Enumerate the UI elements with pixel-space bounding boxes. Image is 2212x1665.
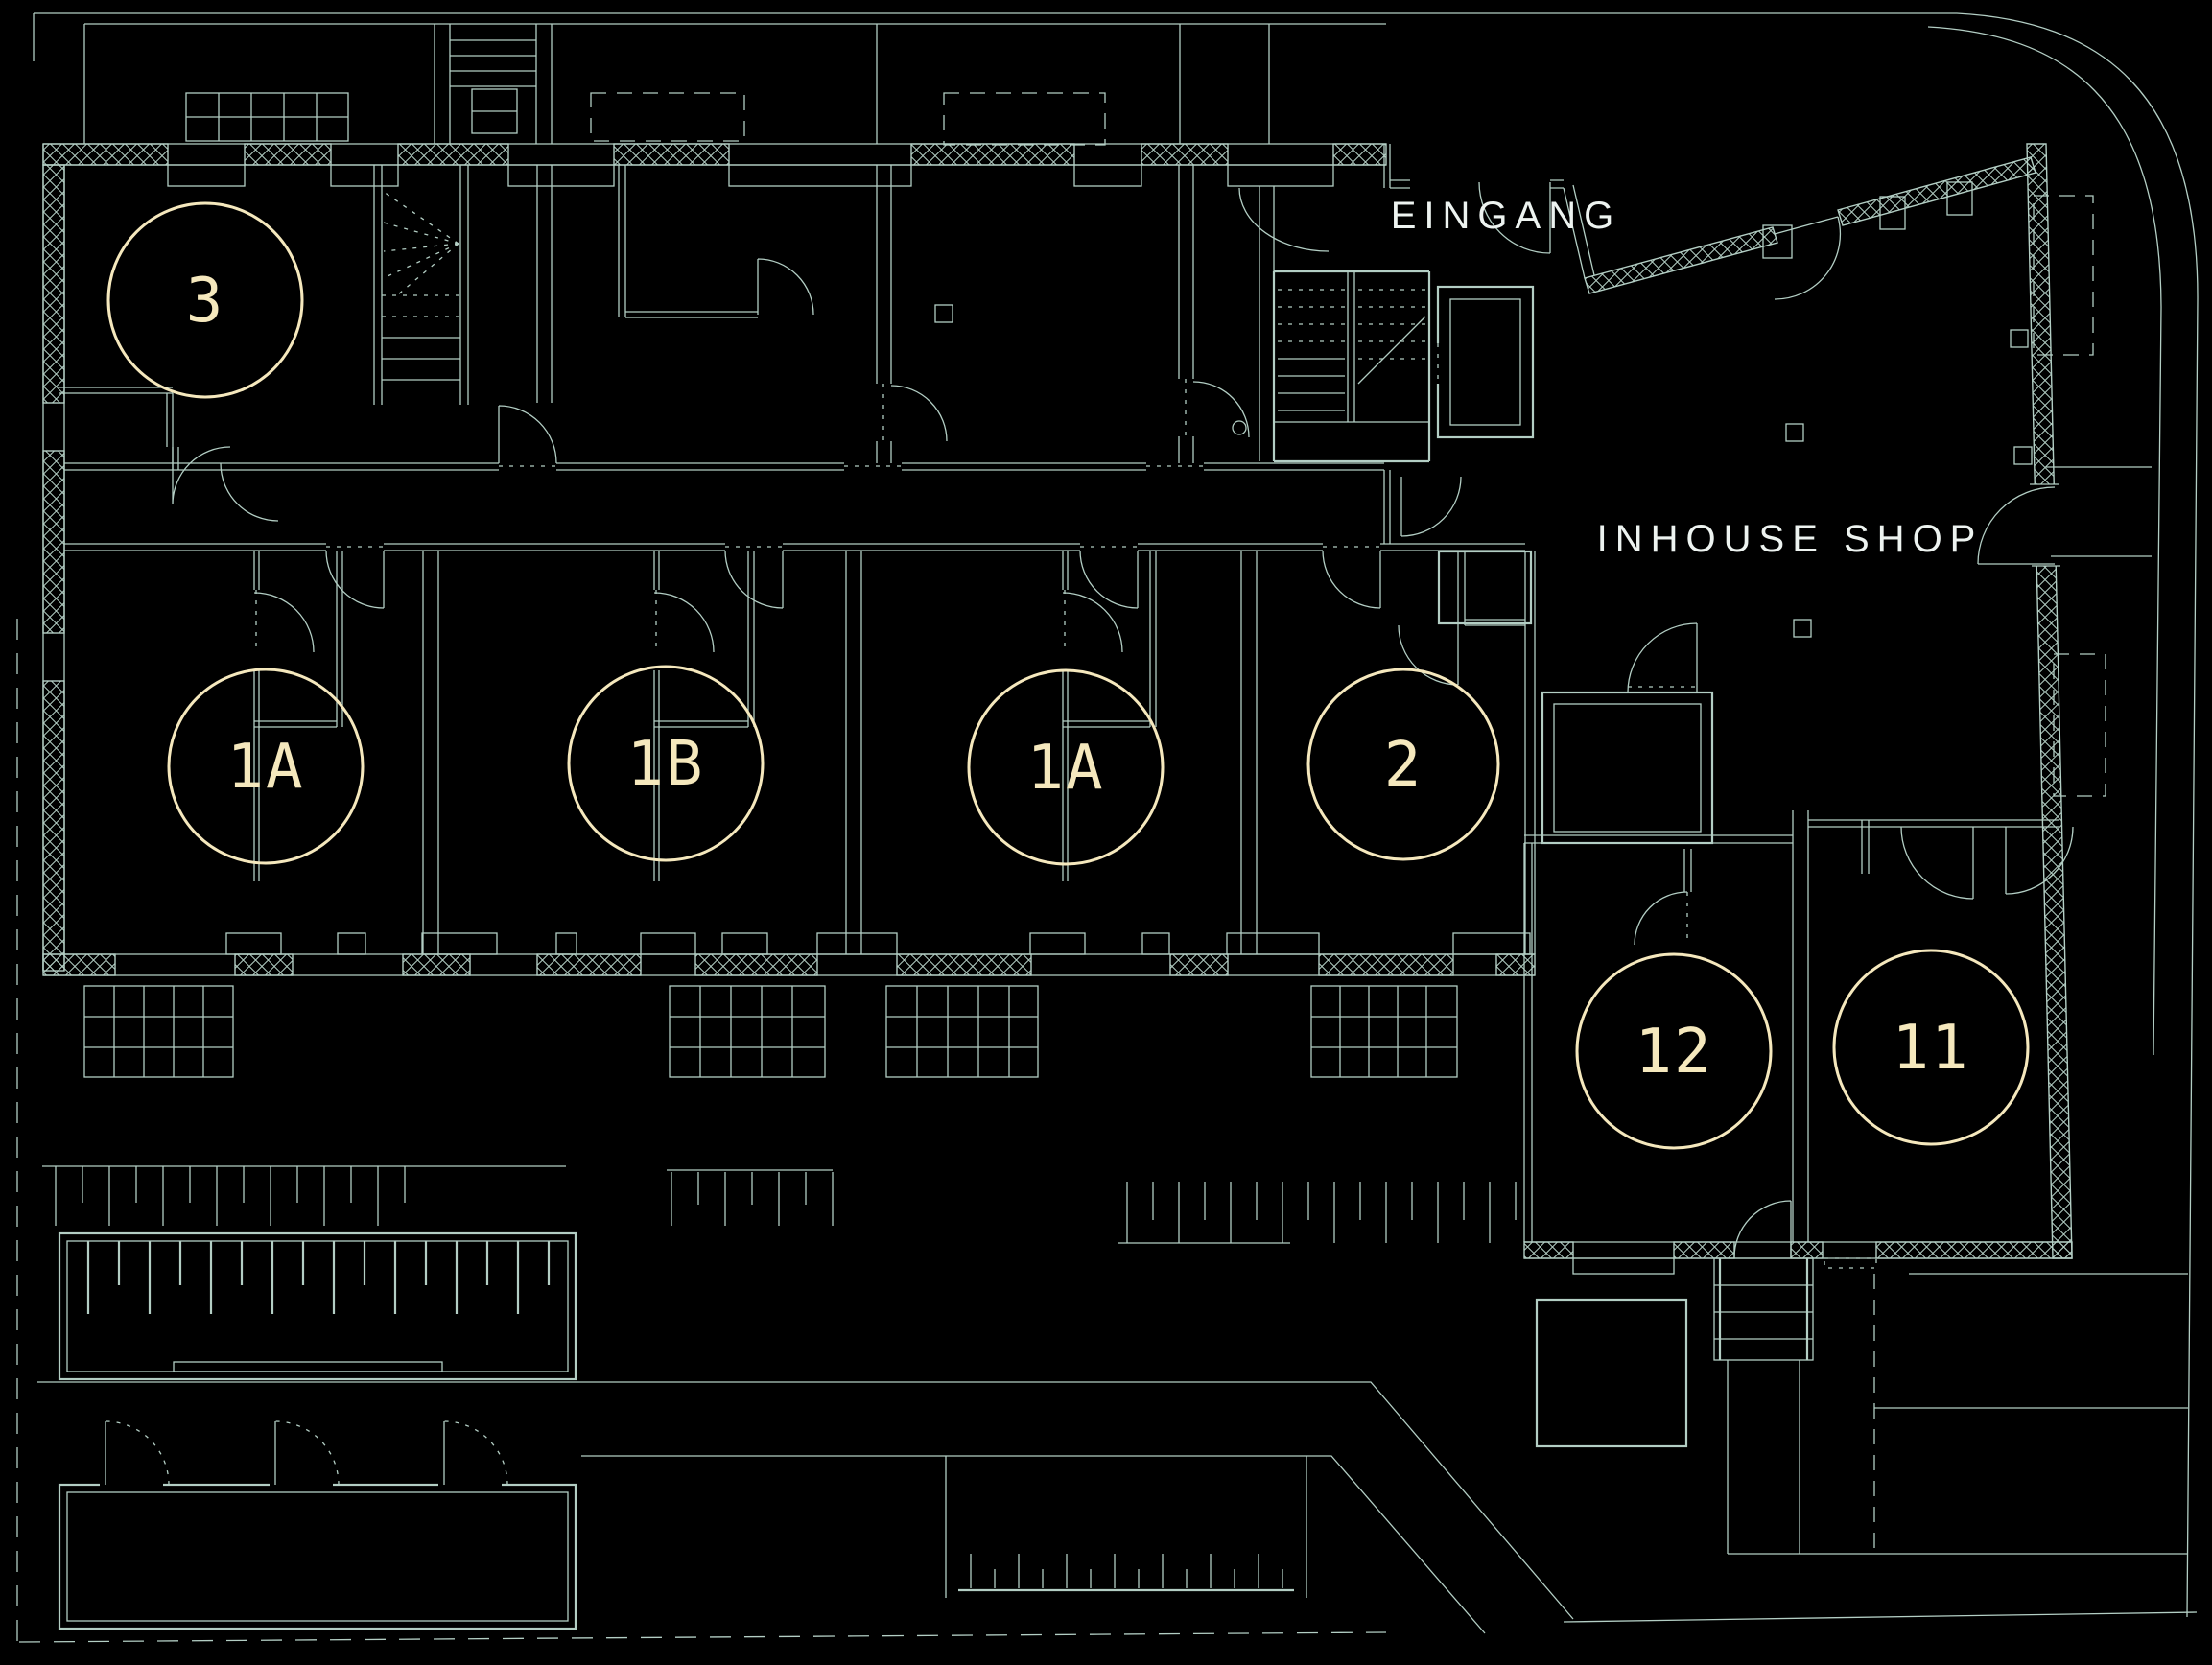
unit-marker-label-1B: 1B (626, 729, 704, 800)
storefront-wall (1838, 157, 2036, 225)
driveway-edge (581, 1456, 1485, 1633)
entrance-label: EINGANG (1391, 195, 1621, 237)
property-line-bottom (19, 1632, 1386, 1642)
balcony-grid (886, 986, 1038, 1077)
column (2014, 447, 2032, 464)
shop-storage-room (1542, 623, 1712, 843)
door-stop (1233, 421, 1246, 434)
plan-labels: EINGANG INHOUSE SHOP (1391, 195, 1984, 560)
floor-plan-page: 31A1B1A21211 EINGANG INHOUSE SHOP (0, 0, 2212, 1665)
balcony-grids (84, 986, 1457, 1077)
balcony-grid (1311, 986, 1457, 1077)
lobby-back-room (1439, 551, 1531, 623)
unit-marker-label-3: 3 (186, 266, 225, 337)
column (935, 305, 953, 322)
lobby-door (1401, 477, 1461, 536)
unit-marker-label-1A: 1A (1026, 733, 1104, 804)
room12-exterior-door (1734, 1201, 1791, 1258)
unit-1a-interior (254, 551, 342, 881)
parking-comb (1127, 1182, 1516, 1243)
column (1786, 424, 1803, 441)
unit-marker-label-11: 11 (1892, 1013, 1969, 1084)
driveway-edge (37, 1382, 1573, 1619)
winder-stair (374, 165, 468, 405)
site-boundary (17, 13, 2198, 1642)
unit-2-interior (1399, 551, 1525, 685)
upper-room-partitions (59, 165, 1329, 521)
dashed-overhang (591, 93, 744, 141)
exterior-stair-top (450, 40, 536, 133)
shop-area (1542, 424, 1811, 843)
rooms-12-11 (1524, 810, 2073, 1258)
window-sills-top (168, 165, 1333, 186)
dashed-overhang (944, 93, 1105, 145)
corridor-walls (64, 421, 1525, 551)
balcony-grid (84, 986, 233, 1077)
unit-1b-interior (654, 551, 754, 881)
yard-and-parking (37, 1166, 2188, 1633)
unit-marker-label-2: 2 (1384, 730, 1424, 801)
bike-shelter (59, 1233, 576, 1379)
main-stair (1274, 271, 1429, 461)
skylight-grid (186, 93, 348, 141)
shop-label: INHOUSE SHOP (1597, 518, 1984, 560)
elevator (1433, 287, 1533, 437)
dashed-zone (2054, 654, 2106, 796)
parking-comb (671, 1172, 833, 1226)
window-sills-bottom (226, 933, 1530, 954)
parking-comb (56, 1166, 405, 1226)
storefront-wall (1585, 227, 1777, 293)
utility-box (1537, 1300, 1686, 1446)
unit-marker-label-1A: 1A (226, 732, 304, 803)
fence-comb (971, 1554, 1282, 1588)
column (1794, 620, 1811, 637)
unit-marker-label-12: 12 (1635, 1017, 1712, 1088)
unit-partitions (254, 551, 1535, 954)
column (2011, 330, 2028, 347)
floor-plan-canvas: 31A1B1A21211 EINGANG INHOUSE SHOP (0, 0, 2212, 1665)
storage-shed (59, 1421, 576, 1629)
neighbor-strip (84, 24, 1386, 145)
unit-entry-doors (326, 551, 1380, 608)
exterior-steps (1714, 1258, 1813, 1360)
balcony-grid (670, 986, 825, 1077)
exterior-walls (43, 144, 2072, 1274)
